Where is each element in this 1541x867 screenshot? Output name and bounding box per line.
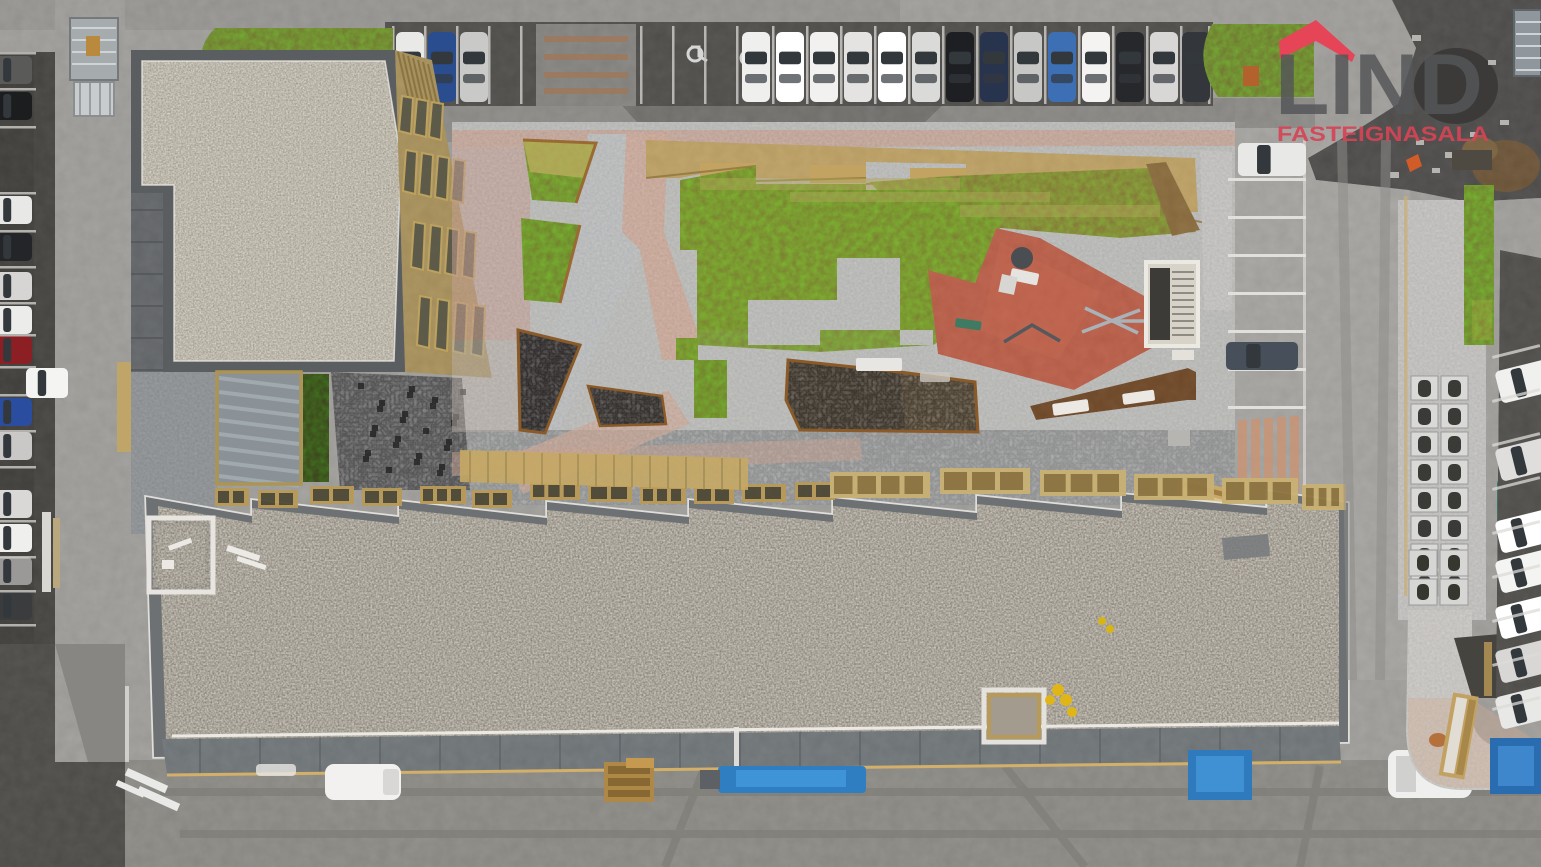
svg-text:FASTEIGNASALA: FASTEIGNASALA <box>1277 123 1489 146</box>
svg-text:LIND: LIND <box>1275 37 1483 133</box>
